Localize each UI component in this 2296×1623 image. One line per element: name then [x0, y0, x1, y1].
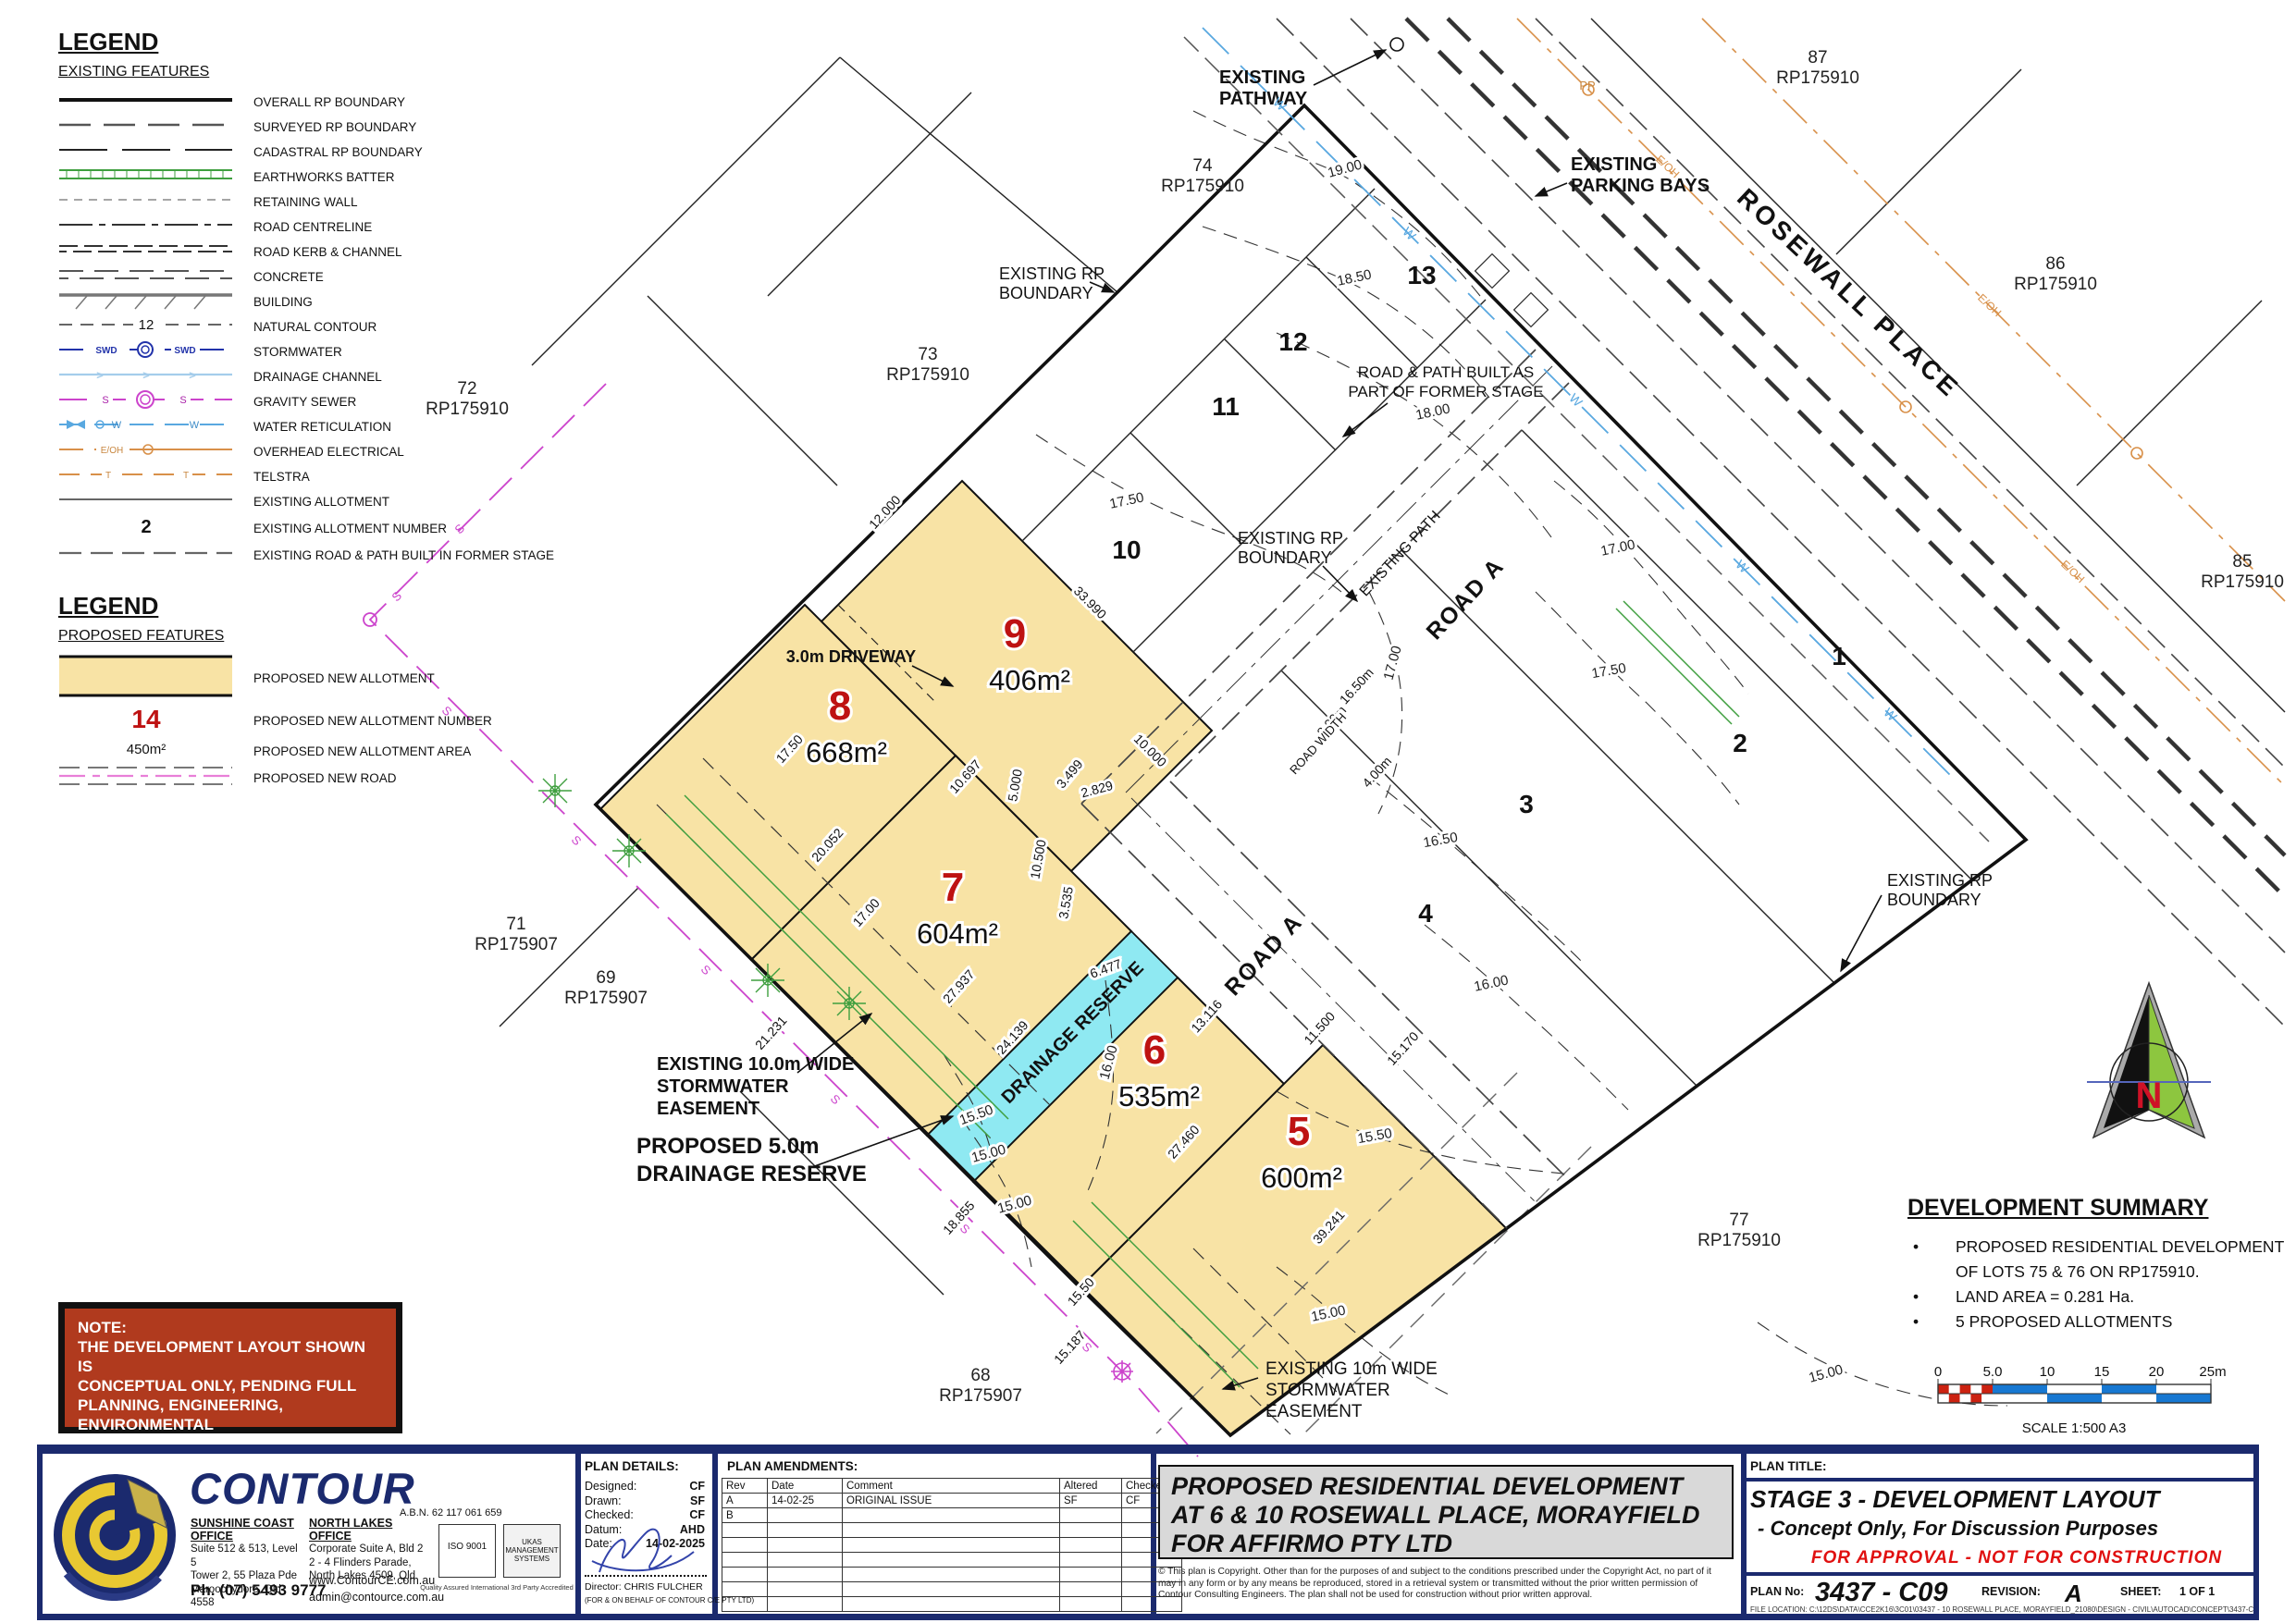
plan-title-rule	[1747, 1572, 2253, 1576]
plan-label: SCALE 1:500 A3	[2022, 1420, 2127, 1436]
detail-label: Checked:	[585, 1508, 634, 1523]
amendments-cell	[768, 1523, 843, 1538]
plan-label: 18.50	[1336, 266, 1373, 289]
amendments-cell: A	[722, 1494, 768, 1508]
legend-item-label: CADASTRAL RP BOUNDARY	[241, 145, 423, 159]
amendments-col-header: Altered	[1060, 1479, 1122, 1494]
plan-label: ROAD A	[1422, 553, 1510, 645]
amendments-cell	[722, 1597, 768, 1612]
amendments-cell	[843, 1582, 1060, 1597]
plan-label: 68	[970, 1366, 990, 1385]
legend-item: 12NATURAL CONTOUR	[56, 314, 574, 339]
plan-no: 3437 - C09	[1815, 1578, 1948, 1608]
plan-label: S	[828, 1091, 844, 1107]
legend-item: EXISTING ROAD & PATH BUILT IN FORMER STA…	[56, 543, 574, 568]
plan-label: RP175910	[1697, 1231, 1781, 1250]
ukas-badge: UKAS MANAGEMENT SYSTEMS	[503, 1524, 561, 1578]
svg-text:>: >	[96, 368, 104, 382]
revision-label: REVISION:	[1981, 1585, 2041, 1598]
plan-label: 15.00	[1808, 1362, 1845, 1386]
svg-text:T: T	[183, 471, 189, 481]
amendments-col-header: Rev	[722, 1479, 768, 1494]
sewer-manhole-icon	[1111, 1360, 1133, 1383]
legend-item: EXISTING ALLOTMENT	[56, 489, 574, 514]
plan-label: 69	[596, 968, 615, 988]
plan-label: EXISTING PATH	[1357, 508, 1444, 599]
plan-label: 17.50	[1108, 489, 1145, 511]
bullet-icon: •	[1907, 1285, 1956, 1309]
office-address-line: Corporate Suite A, Bld 2	[309, 1543, 429, 1556]
titleblock-right-bar	[2253, 1445, 2259, 1620]
plan-label: 11	[1212, 392, 1240, 421]
amendments-cell	[843, 1508, 1060, 1523]
plan-label: EXISTING RP	[999, 264, 1105, 283]
plan-label: EXISTING	[1571, 154, 1657, 175]
legend-item: 450m²PROPOSED NEW ALLOTMENT AREA	[56, 739, 574, 764]
plan-label: 12	[1278, 327, 1307, 356]
plan-label: 10	[1112, 535, 1141, 564]
plan-title-line2: - Concept Only, For Discussion Purposes	[1758, 1517, 2158, 1541]
bullet-icon: •	[1907, 1309, 1956, 1334]
legend-swatch-newallot-icon	[56, 652, 241, 705]
svg-text:14: 14	[131, 705, 161, 733]
amendments-cell: 14-02-25	[768, 1494, 843, 1508]
plan-label: DRAINAGE RESERVE	[636, 1162, 867, 1187]
amendments-cell	[1060, 1553, 1122, 1568]
svg-text:E/OH: E/OH	[101, 446, 123, 456]
plan-label: 15	[2094, 1364, 2110, 1380]
plan-label: 12.000	[866, 492, 904, 532]
main-title-line: FOR AFFIRMO PTY LTD	[1171, 1530, 1721, 1558]
amendments-row	[722, 1568, 1182, 1582]
plan-detail-row: Drawn:SF	[585, 1494, 705, 1509]
plan-label: ROSEWALL PLACE	[1732, 183, 1966, 404]
plan-label: RP175910	[886, 365, 969, 385]
plan-label: 77	[1729, 1211, 1748, 1230]
note-line: THE DEVELOPMENT LAYOUT SHOWN IS	[78, 1337, 383, 1376]
plan-title-line1: STAGE 3 - DEVELOPMENT LAYOUT	[1750, 1485, 2160, 1514]
summary-text: LAND AREA = 0.281 Ha.	[1956, 1285, 2134, 1309]
plan-label: PART OF FORMER STAGE	[1348, 383, 1543, 400]
legend-subtitle: PROPOSED FEATURES	[58, 628, 574, 645]
detail-label: Drawn:	[585, 1494, 622, 1509]
legend-item-label: CONCRETE	[241, 270, 324, 284]
plan-label: 16.00	[1473, 972, 1510, 994]
plan-label: 16.50	[1422, 830, 1459, 851]
amendments-cell	[768, 1553, 843, 1568]
plan-details-header: PLAN DETAILS:	[585, 1459, 679, 1473]
svg-text:12: 12	[139, 317, 154, 333]
sheet-number: 1 OF 1	[2179, 1585, 2215, 1598]
amendments-cell	[722, 1523, 768, 1538]
svg-text:450m²: 450m²	[127, 742, 167, 757]
overhead-electrical-lines	[1517, 18, 2285, 786]
amendments-col-header: Comment	[843, 1479, 1060, 1494]
plan-label: EASEMENT	[1265, 1402, 1363, 1421]
note-line: PLANNING, ENGINEERING, ENVIRONMENTAL	[78, 1396, 383, 1434]
legend-item-label: SURVEYED RP BOUNDARY	[241, 120, 416, 134]
plan-label: PARKING BAYS	[1571, 176, 1710, 196]
legend-item-label: ROAD CENTRELINE	[241, 220, 372, 234]
legend-swatch-newallotnum-icon: 14	[56, 701, 241, 741]
svg-text:>: >	[189, 368, 196, 382]
plan-label: PATHWAY	[1219, 89, 1308, 109]
plan-label: EASEMENT	[657, 1099, 759, 1119]
plan-label: 74	[1192, 156, 1213, 176]
legend-item: E/OHOVERHEAD ELECTRICAL	[56, 439, 574, 464]
office-address-line: 2 - 4 Flinders Parade,	[309, 1556, 429, 1570]
plan-label: 4	[1418, 899, 1433, 928]
amendments-cell	[843, 1568, 1060, 1582]
detail-value: CF	[689, 1480, 705, 1494]
summary-text: OF LOTS 75 & 76 ON RP175910.	[1956, 1260, 2200, 1285]
legend-item-label: NATURAL CONTOUR	[241, 320, 376, 334]
amendments-cell	[768, 1568, 843, 1582]
plan-label: 10	[2040, 1364, 2055, 1380]
plan-label: STORMWATER	[1265, 1381, 1390, 1400]
svg-text:W: W	[190, 420, 200, 431]
titleblock-separator	[712, 1452, 718, 1617]
plan-label: EXISTING RP	[1887, 871, 1993, 890]
office-address-line: Suite 512 & 513, Level 5	[191, 1543, 303, 1569]
plan-label: 20	[2149, 1364, 2165, 1380]
svg-text:SWD: SWD	[174, 346, 195, 356]
main-title: PROPOSED RESIDENTIAL DEVELOPMENT AT 6 & …	[1158, 1465, 1734, 1559]
plan-label: PROPOSED 5.0m	[636, 1134, 819, 1159]
legend-item-label: PROPOSED NEW ALLOTMENT	[241, 671, 435, 685]
copyright-notice: © This plan is Copyright. Other than for…	[1158, 1567, 1732, 1602]
legend-item-label: STORMWATER	[241, 345, 342, 359]
legend-item: SSGRAVITY SEWER	[56, 389, 574, 414]
main-title-line: AT 6 & 10 ROSEWALL PLACE, MORAYFIELD	[1171, 1501, 1721, 1530]
plan-label: 8	[829, 683, 851, 729]
legend-swatch-newroad-icon	[56, 762, 241, 794]
amendments-cell	[722, 1553, 768, 1568]
note-line: CONCEPTUAL ONLY, PENDING FULL	[78, 1376, 383, 1396]
legend-title: LEGEND	[58, 592, 574, 621]
plan-amendments-table: RevDateCommentAlteredChecked A14-02-25OR…	[722, 1478, 1182, 1612]
plan-label: 86	[2045, 254, 2065, 274]
legend-item: CONCRETE	[56, 264, 574, 289]
development-summary-title: DEVELOPMENT SUMMARY	[1907, 1195, 2296, 1222]
summary-text: PROPOSED RESIDENTIAL DEVELOPMENT	[1956, 1235, 2284, 1260]
plan-label: RP175910	[2014, 275, 2097, 294]
summary-bullet: •5 PROPOSED ALLOTMENTS	[1907, 1309, 2296, 1334]
revision: A	[2065, 1580, 2082, 1608]
plan-label: 9	[1004, 611, 1026, 657]
plan-title-rule	[1747, 1478, 2253, 1482]
amendments-cell	[843, 1553, 1060, 1568]
plan-label: 600m²	[1261, 1162, 1342, 1194]
plan-title-header: PLAN TITLE:	[1750, 1459, 1827, 1473]
plan-label: 2	[1733, 729, 1747, 757]
proposed-lots	[600, 481, 1506, 1435]
amendments-row	[722, 1582, 1182, 1597]
legend-title: LEGEND	[58, 28, 574, 56]
amendments-cell: B	[722, 1508, 768, 1523]
legend-item-label: TELSTRA	[241, 470, 310, 484]
plan-label: EXISTING 10m WIDE	[1265, 1359, 1438, 1379]
legend-item-label: EXISTING ALLOTMENT NUMBER	[241, 522, 447, 535]
legend-item-label: WATER RETICULATION	[241, 420, 391, 434]
amendments-cell	[1060, 1568, 1122, 1582]
plan-no-label: PLAN No:	[1750, 1585, 1804, 1598]
legend-item-label: BUILDING	[241, 295, 313, 309]
svg-text:T: T	[105, 471, 111, 481]
plan-label: E/OH	[2058, 558, 2087, 585]
plan-label: 13	[1407, 261, 1436, 289]
amendments-cell	[1060, 1582, 1122, 1597]
svg-text:S: S	[179, 395, 186, 406]
amendments-cell	[722, 1538, 768, 1553]
amendments-cell	[843, 1523, 1060, 1538]
plan-label: 5	[1288, 1109, 1310, 1154]
legend-item: SURVEYED RP BOUNDARY	[56, 115, 574, 140]
amendments-cell: SF	[1060, 1494, 1122, 1508]
amendments-row: A14-02-25ORIGINAL ISSUESFCF	[722, 1494, 1182, 1508]
plan-label: RP175907	[939, 1386, 1022, 1406]
file-location: FILE LOCATION: C:\12DS\DATA\CCE2K16\3C01…	[1750, 1605, 2253, 1614]
summary-bullet: •LAND AREA = 0.281 Ha.	[1907, 1285, 2296, 1309]
titleblock-separator	[1741, 1452, 1747, 1617]
legend-item-label: EARTHWORKS BATTER	[241, 170, 395, 184]
amendments-cell	[1060, 1523, 1122, 1538]
plan-label: EXISTING RP	[1238, 529, 1343, 547]
legend-swatch-allotnum-icon: 2	[56, 512, 241, 545]
plan-label: RP175907	[564, 989, 648, 1008]
note-box: NOTE:THE DEVELOPMENT LAYOUT SHOWN ISCONC…	[58, 1302, 402, 1433]
badge-caption: Quality Assured International 3rd Party …	[418, 1583, 575, 1592]
plan-label: 71	[506, 915, 525, 934]
legend-swatch-roadformer-icon	[56, 541, 241, 570]
detail-label: Designed:	[585, 1480, 636, 1494]
plan-label: 17.50	[1590, 660, 1627, 682]
plan-label: 535m²	[1118, 1080, 1200, 1113]
sheet-label: SHEET:	[2120, 1585, 2161, 1598]
plan-label: BOUNDARY	[1238, 548, 1332, 567]
legend-item: OVERALL RP BOUNDARY	[56, 90, 574, 115]
svg-text:2: 2	[141, 517, 151, 537]
plan-label: 406m²	[989, 664, 1070, 696]
company-website: www.ContourCE.com.au	[309, 1574, 435, 1587]
titleblock-top-bar	[37, 1445, 2259, 1454]
detail-value: SF	[690, 1494, 705, 1509]
legend-item: TTTELSTRA	[56, 464, 574, 489]
signature-line	[585, 1575, 707, 1577]
plan-label: 668m²	[806, 736, 887, 768]
amendments-cell	[722, 1582, 768, 1597]
plan-label: BOUNDARY	[999, 284, 1093, 302]
company-email: admin@contource.com.au	[309, 1591, 444, 1604]
plan-label: 15.170	[1384, 1028, 1422, 1068]
plan-label: N	[2136, 1076, 2163, 1116]
legend-item: 14PROPOSED NEW ALLOTMENT NUMBER	[56, 703, 574, 739]
plan-label: S	[569, 832, 585, 848]
amendments-cell	[1060, 1538, 1122, 1553]
legend-item-label: GRAVITY SEWER	[241, 395, 356, 409]
bullet-icon	[1907, 1260, 1956, 1285]
legend-item: 2EXISTING ALLOTMENT NUMBER	[56, 514, 574, 543]
legend-item-label: OVERHEAD ELECTRICAL	[241, 445, 404, 459]
plan-label: 18.00	[1414, 400, 1451, 423]
plan-label: 604m²	[917, 917, 998, 950]
plan-label: STORMWATER	[657, 1076, 789, 1097]
approval-stamp: FOR APPROVAL - NOT FOR CONSTRUCTION	[1785, 1548, 2248, 1568]
legend-item-label: PROPOSED NEW ALLOTMENT AREA	[241, 744, 471, 758]
amendments-cell	[768, 1597, 843, 1612]
legend-existing-features: LEGEND EXISTING FEATURES OVERALL RP BOUN…	[56, 28, 574, 568]
legend-item-label: DRAINAGE CHANNEL	[241, 370, 382, 384]
legend-item-label: PROPOSED NEW ROAD	[241, 771, 397, 785]
plan-label: 4.00m	[1359, 754, 1394, 791]
plan-label: 1	[1832, 642, 1846, 670]
amendments-cell	[768, 1538, 843, 1553]
plan-label: RP175910	[1776, 68, 1859, 88]
amendments-row	[722, 1523, 1182, 1538]
plan-detail-row: Designed:CF	[585, 1480, 705, 1494]
legend-item: PROPOSED NEW ROAD	[56, 764, 574, 793]
plan-label: RP175910	[2201, 572, 2284, 592]
plan-label: 17.00	[1381, 645, 1405, 682]
plan-label: 87	[1808, 48, 1827, 68]
legend-item-label: EXISTING ALLOTMENT	[241, 495, 389, 509]
legend-proposed-features: LEGEND PROPOSED FEATURES PROPOSED NEW AL…	[56, 592, 574, 793]
amendments-cell	[722, 1568, 768, 1582]
svg-text:S: S	[102, 395, 108, 406]
legend-item: ROAD CENTRELINE	[56, 215, 574, 240]
plan-label: 16.50m	[1337, 665, 1376, 707]
legend-item-label: ROAD KERB & CHANNEL	[241, 245, 402, 259]
plan-label: 3.0m DRIVEWAY	[786, 647, 916, 666]
summary-text: 5 PROPOSED ALLOTMENTS	[1956, 1309, 2172, 1334]
company-phone: Ph. (07) 5493 9777	[191, 1581, 326, 1600]
plan-label: 5.0	[1983, 1364, 2003, 1380]
summary-bullet: OF LOTS 75 & 76 ON RP175910.	[1907, 1260, 2296, 1285]
titleblock-left-bar	[37, 1445, 43, 1620]
titleblock-separator	[575, 1452, 581, 1617]
legend-item-label: PROPOSED NEW ALLOTMENT NUMBER	[241, 714, 492, 728]
plan-sheet: 9406m²8668m²7604m²6535m²5600m²1312111012…	[0, 0, 2296, 1623]
amendments-cell	[768, 1508, 843, 1523]
plan-label: S	[698, 962, 714, 977]
development-summary: DEVELOPMENT SUMMARY •PROPOSED RESIDENTIA…	[1907, 1195, 2296, 1334]
legend-item: WWWATER RETICULATION	[56, 414, 574, 439]
titleblock-bottom-bar	[37, 1614, 2259, 1620]
legend-item-label: EXISTING ROAD & PATH BUILT IN FORMER STA…	[241, 548, 554, 562]
plan-label: 0	[1934, 1364, 1942, 1380]
legend-item: ROAD KERB & CHANNEL	[56, 240, 574, 264]
legend-item-label: OVERALL RP BOUNDARY	[241, 95, 405, 109]
plan-label: RP175910	[1161, 177, 1244, 196]
amendments-row	[722, 1597, 1182, 1612]
plan-label: PP	[1579, 79, 1595, 92]
legend-item: BUILDING	[56, 289, 574, 314]
amendments-cell: ORIGINAL ISSUE	[843, 1494, 1060, 1508]
note-line: NOTE:	[78, 1318, 383, 1337]
detail-value: CF	[689, 1508, 705, 1523]
plan-label: 17.00	[1599, 536, 1636, 559]
bullet-icon: •	[1907, 1235, 1956, 1260]
legend-item: PROPOSED NEW ALLOTMENT	[56, 654, 574, 703]
plan-label: BOUNDARY	[1887, 891, 1981, 909]
plan-label: 3	[1519, 790, 1534, 818]
director-signature	[583, 1524, 712, 1580]
legend-item-label: RETAINING WALL	[241, 195, 358, 209]
summary-bullet: •PROPOSED RESIDENTIAL DEVELOPMENT	[1907, 1235, 2296, 1260]
amendments-cell	[843, 1538, 1060, 1553]
plan-amendments-header: PLAN AMENDMENTS:	[727, 1459, 858, 1473]
main-title-line: PROPOSED RESIDENTIAL DEVELOPMENT	[1171, 1472, 1721, 1501]
amendments-cell	[843, 1597, 1060, 1612]
plan-label: ROAD WIDTH	[1287, 710, 1349, 777]
amendments-cell	[1060, 1508, 1122, 1523]
legend-item: SWDSWDSTORMWATER	[56, 339, 574, 364]
company-name: CONTOUR	[190, 1463, 415, 1514]
amendments-row: B	[722, 1508, 1182, 1523]
amendments-cell	[1060, 1597, 1122, 1612]
director-name: Director: CHRIS FULCHER	[585, 1581, 703, 1592]
amendments-row	[722, 1553, 1182, 1568]
plan-label: 6	[1143, 1027, 1166, 1073]
legend-subtitle: EXISTING FEATURES	[58, 64, 574, 80]
legend-item: >>>DRAINAGE CHANNEL	[56, 364, 574, 389]
plan-label: 7	[942, 865, 964, 910]
plan-label: EXISTING	[1219, 68, 1305, 88]
svg-text:W: W	[112, 420, 122, 431]
amendments-col-header: Date	[768, 1479, 843, 1494]
plan-label: EXISTING 10.0m WIDE	[657, 1054, 854, 1075]
plan-label: 85	[2232, 552, 2252, 572]
plan-label: RP175907	[475, 935, 558, 954]
plan-detail-row: Checked:CF	[585, 1508, 705, 1523]
plan-label: 25m	[2199, 1364, 2226, 1380]
legend-item: EARTHWORKS BATTER	[56, 165, 574, 190]
amendments-cell	[768, 1582, 843, 1597]
office-north-lakes: NORTH LAKES OFFICE Corporate Suite A, Bl…	[309, 1517, 429, 1583]
contour-logo-icon	[48, 1463, 187, 1611]
plan-label: ROAD & PATH BUILT AS	[1358, 363, 1535, 381]
plan-label: 73	[918, 345, 937, 364]
legend-item: CADASTRAL RP BOUNDARY	[56, 140, 574, 165]
iso-badge: ISO 9001	[438, 1524, 496, 1578]
amendments-row	[722, 1538, 1182, 1553]
svg-text:SWD: SWD	[95, 346, 117, 356]
svg-text:>: >	[142, 368, 150, 382]
scale-bar	[1938, 1379, 2211, 1403]
plan-label: 19.00	[1327, 157, 1364, 181]
legend-item: RETAINING WALL	[56, 190, 574, 215]
